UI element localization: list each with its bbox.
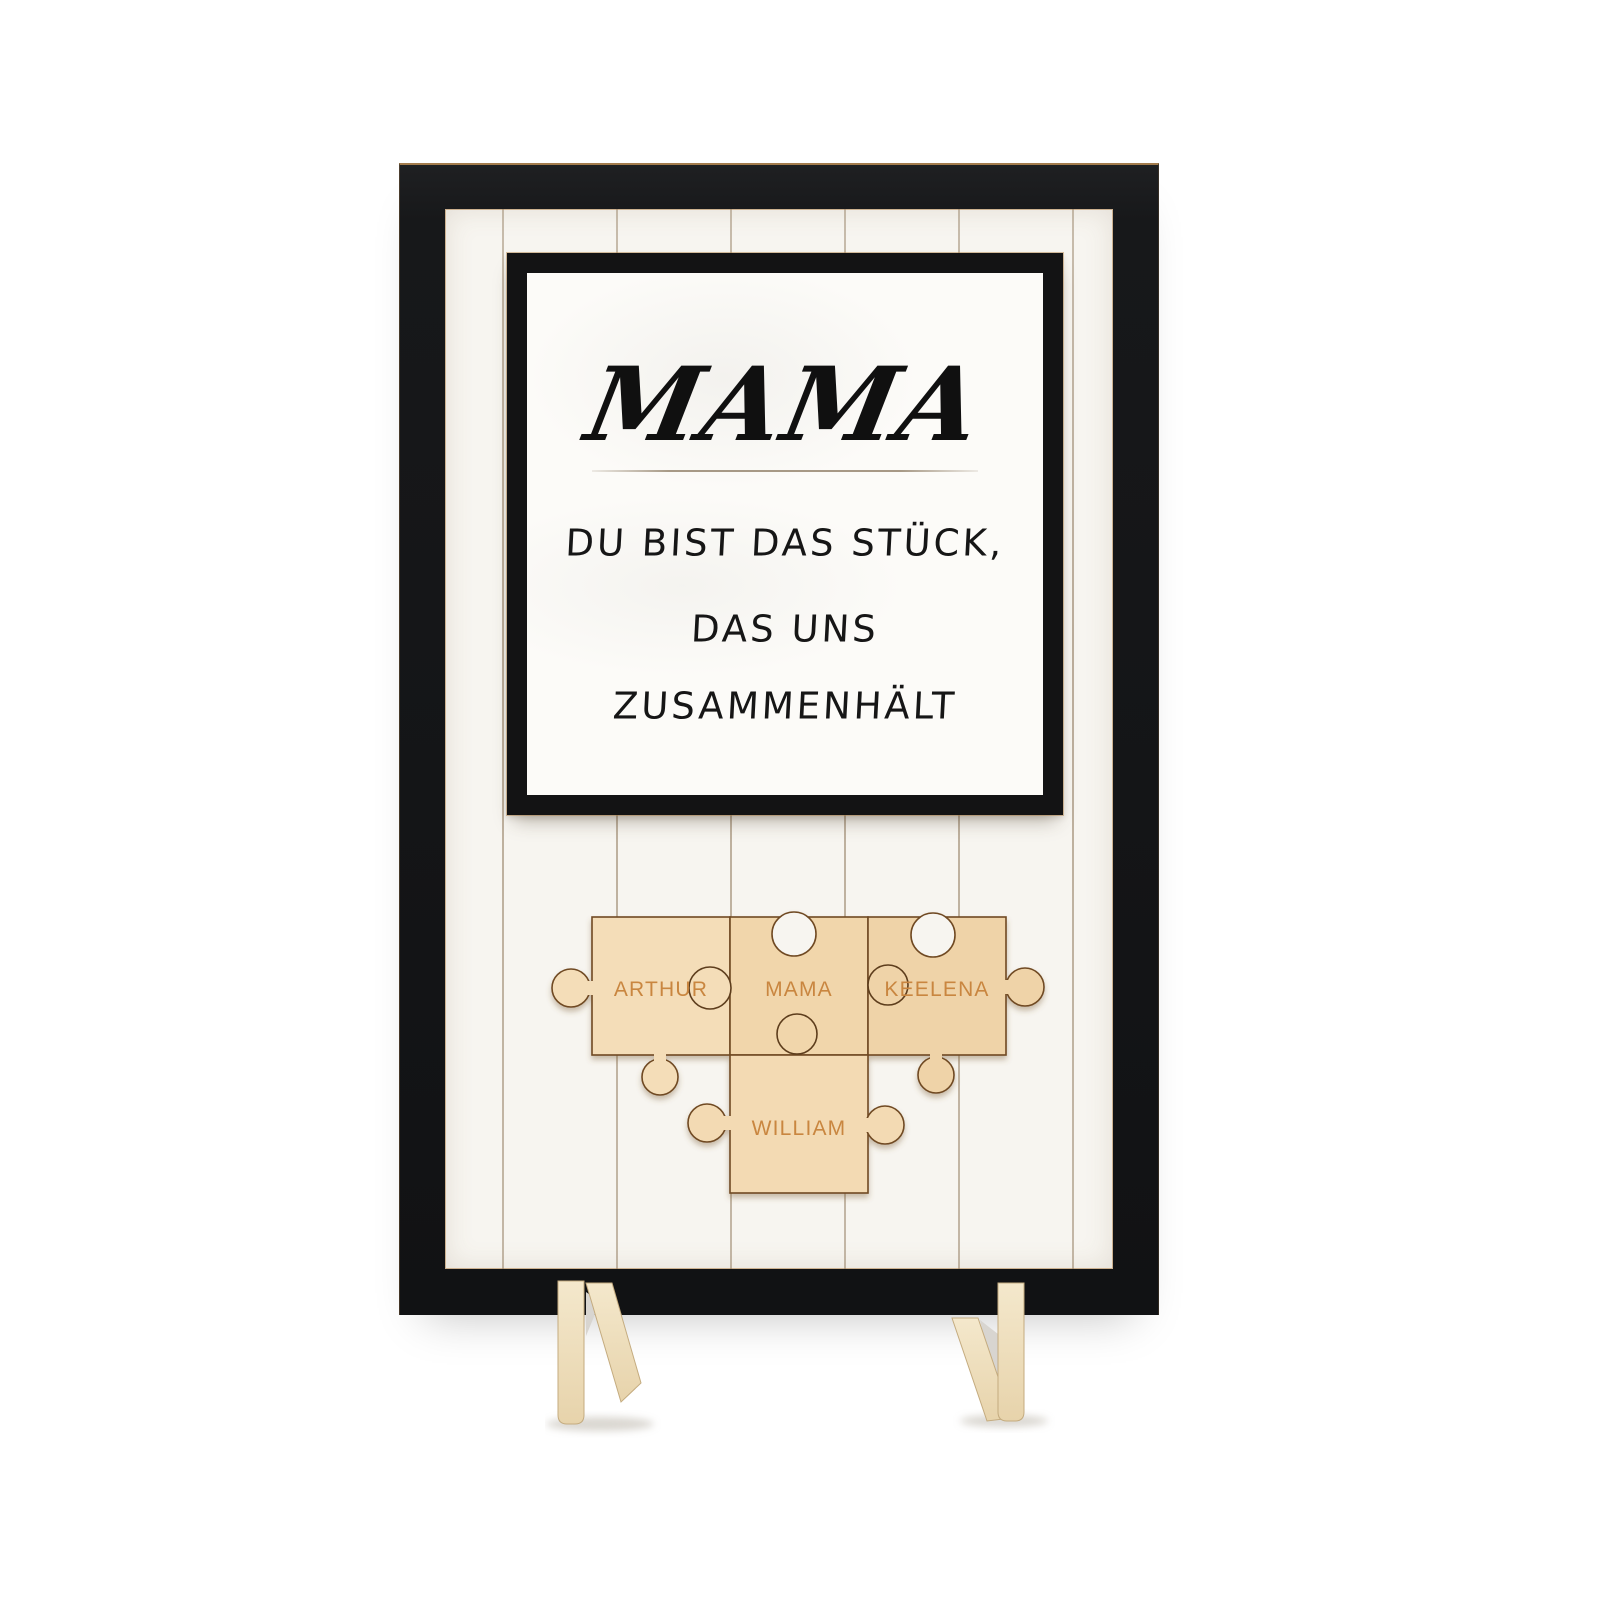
product-photo: MAMA DU BIST DAS STÜCK, DAS UNS ZUSAMMEN… (0, 0, 1600, 1600)
puzzle-knob (642, 1059, 678, 1095)
puzzle-notch (772, 912, 816, 956)
sign-message-line: DAS UNS (526, 608, 1044, 651)
puzzle-notch (911, 913, 955, 957)
plank-groove (1072, 209, 1074, 1269)
sign-message-line: DU BIST DAS STÜCK, (526, 522, 1044, 565)
easel-stand (545, 1265, 1065, 1440)
sign-message-line: ZUSAMMENHÄLT (526, 685, 1044, 728)
title-divider (592, 470, 978, 472)
sign-title: MAMA (515, 345, 1054, 465)
quote-sign: MAMA DU BIST DAS STÜCK, DAS UNS ZUSAMMEN… (507, 253, 1063, 815)
plank-groove (502, 209, 504, 1269)
puzzle-piece-name: KEELENA (884, 978, 989, 1001)
puzzle-knob (918, 1057, 954, 1093)
easel-foot-right (952, 1283, 1024, 1421)
puzzle-piece-name: ARTHUR (614, 978, 708, 1001)
puzzle-piece-name: WILLIAM (752, 1117, 847, 1140)
puzzle-joint (777, 1014, 817, 1054)
puzzle-piece-name: MAMA (765, 978, 833, 1001)
name-puzzle: ARTHUR MAMA KEELENA WILLIAM (540, 895, 1050, 1205)
easel-foot-left (558, 1281, 641, 1424)
